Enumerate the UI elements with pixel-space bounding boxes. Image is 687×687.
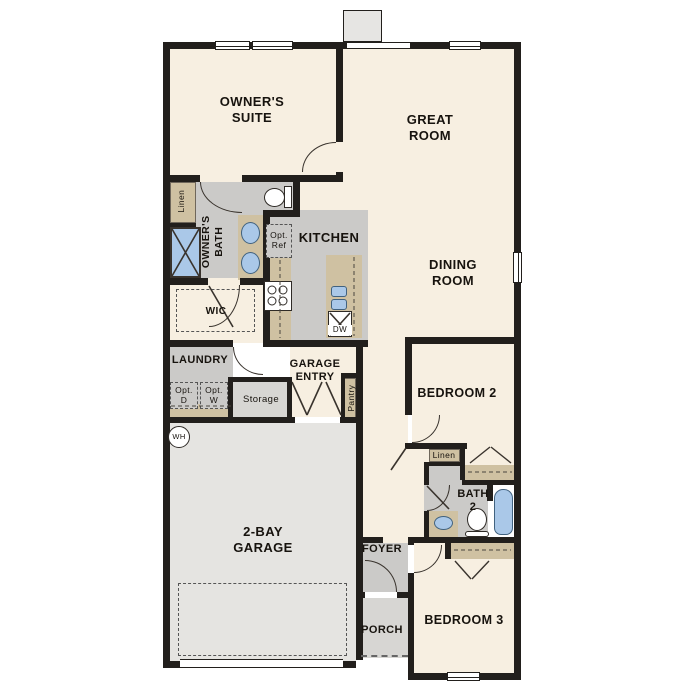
label-dw: DW	[328, 325, 352, 335]
toilet-owners-bowl	[264, 188, 285, 207]
label-opt-d: Opt. D	[169, 386, 199, 406]
label-kitchen: KITCHEN	[279, 230, 379, 246]
toilet-bath2-base	[465, 531, 489, 537]
wall-suite-greatroom	[336, 49, 343, 142]
floor-hall-nook	[408, 449, 424, 543]
island-sink-1	[331, 286, 347, 297]
label-owners-bath: OWNER'S BATH	[200, 192, 226, 292]
porch-edge-dashed	[361, 655, 408, 657]
wall-laundry-top-a	[163, 340, 233, 347]
wall-bed2-closet-top	[405, 443, 467, 449]
label-porch: PORCH	[352, 624, 412, 637]
window-bedroom3	[447, 672, 480, 681]
label-bedroom2: BEDROOM 2	[397, 386, 517, 401]
range-cooktop	[264, 281, 292, 311]
wall-bed3-closet-stub	[445, 543, 451, 559]
wall-bath-wic-b	[240, 278, 263, 285]
toilet-owners-tank	[284, 186, 292, 208]
wall-suite-door-stub	[336, 172, 343, 182]
window-suite-2	[252, 41, 293, 50]
shower-owners	[170, 227, 201, 278]
wall-bed3-bottom-a	[408, 673, 448, 680]
garage-bay-dashed	[178, 583, 347, 656]
wall-wc-right	[293, 182, 300, 217]
label-bedroom3: BEDROOM 3	[404, 613, 524, 628]
label-bath2: BATH 2	[443, 488, 503, 515]
wall-bath2-bed3	[408, 537, 514, 543]
label-pantry: Pantry	[346, 376, 356, 420]
wall-garage-right	[356, 340, 363, 660]
fireplace	[343, 10, 382, 42]
label-linen-hall: Linen	[424, 450, 464, 460]
floor-hallway	[363, 343, 408, 543]
label-storage: Storage	[221, 394, 301, 406]
wall-kitchen-bottom	[263, 340, 368, 347]
label-water-heater: WH	[168, 426, 190, 448]
label-linen-owners: Linen	[176, 179, 186, 223]
floor-plan: OWNER'S SUITE GREAT ROOM DINING ROOM KIT…	[0, 0, 687, 687]
bath2-sink	[434, 516, 453, 530]
fireplace-sill	[346, 42, 411, 49]
bedroom3-closet-shelf	[451, 543, 514, 559]
wall-bed3-bottom-b	[480, 673, 514, 680]
wall-exterior-right	[514, 42, 521, 680]
window-suite-1	[215, 41, 250, 50]
label-wic: WIC	[176, 306, 256, 318]
label-great-room: GREAT ROOM	[370, 112, 490, 144]
wall-bath2-left-a	[424, 462, 429, 485]
owners-sink-2	[241, 252, 260, 274]
wall-bed2-left	[405, 337, 412, 415]
bedroom2-closet-shelf	[465, 465, 514, 480]
garage-door	[180, 659, 343, 668]
wall-foyer-porch-a	[356, 592, 365, 598]
island-sink-2	[331, 299, 347, 310]
window-greatroom	[449, 41, 481, 50]
wall-dining-bed2	[405, 337, 514, 344]
wall-garage-bottom-a	[163, 661, 180, 668]
label-garage: 2-BAY GARAGE	[203, 524, 323, 556]
wall-suite-south-b	[242, 175, 336, 182]
label-owners-suite: OWNER'S SUITE	[192, 94, 312, 126]
label-foyer: FOYER	[352, 543, 412, 556]
label-opt-ref: Opt. Ref	[264, 231, 294, 251]
label-laundry: LAUNDRY	[150, 354, 250, 367]
window-dining	[513, 252, 522, 283]
wall-garage-bottom-b	[343, 661, 356, 668]
owners-sink-1	[241, 222, 260, 244]
wall-linen-hall-bottom	[429, 462, 462, 466]
wall-foyer-porch-b	[397, 592, 414, 598]
label-dining-room: DINING ROOM	[393, 257, 513, 289]
